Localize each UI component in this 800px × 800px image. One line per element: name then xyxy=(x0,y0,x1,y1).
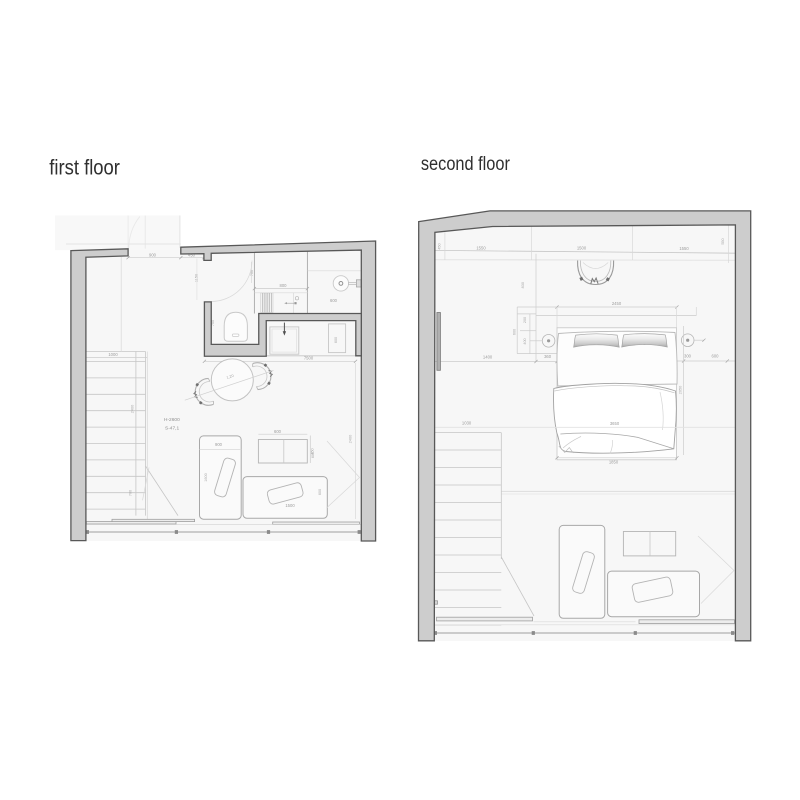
svg-text:700: 700 xyxy=(129,490,133,496)
svg-text:2400: 2400 xyxy=(349,435,353,443)
svg-text:600: 600 xyxy=(712,354,720,359)
svg-text:1500: 1500 xyxy=(577,245,587,250)
svg-text:1550: 1550 xyxy=(476,245,486,250)
svg-text:1150: 1150 xyxy=(195,274,199,282)
svg-text:450: 450 xyxy=(311,448,315,454)
svg-text:600: 600 xyxy=(330,298,338,303)
svg-text:300: 300 xyxy=(684,354,692,359)
svg-text:3650: 3650 xyxy=(610,421,620,426)
svg-text:900: 900 xyxy=(215,442,223,447)
svg-text:1850: 1850 xyxy=(609,460,619,465)
svg-text:2400: 2400 xyxy=(131,405,135,413)
svg-text:H-2600: H-2600 xyxy=(164,417,180,423)
svg-text:600: 600 xyxy=(334,337,338,343)
svg-text:900: 900 xyxy=(149,253,157,258)
svg-text:7500: 7500 xyxy=(304,356,314,361)
svg-text:2450: 2450 xyxy=(612,301,622,306)
svg-text:1500: 1500 xyxy=(285,503,295,508)
svg-text:2050: 2050 xyxy=(679,386,683,394)
svg-text:1600: 1600 xyxy=(204,473,208,481)
svg-text:1400: 1400 xyxy=(483,355,493,360)
svg-text:360: 360 xyxy=(544,354,552,359)
svg-text:1550: 1550 xyxy=(679,246,689,251)
svg-text:450: 450 xyxy=(438,243,442,249)
svg-text:second floor: second floor xyxy=(421,154,511,175)
svg-text:600: 600 xyxy=(513,329,517,335)
svg-text:400: 400 xyxy=(523,338,527,344)
svg-text:800: 800 xyxy=(280,283,288,288)
svg-text:1000: 1000 xyxy=(108,352,118,357)
svg-text:830: 830 xyxy=(521,282,525,288)
svg-text:600: 600 xyxy=(274,429,282,434)
svg-text:550: 550 xyxy=(721,238,725,244)
svg-text:600: 600 xyxy=(318,489,322,495)
svg-text:S-47,1: S-47,1 xyxy=(165,426,179,432)
svg-text:first floor: first floor xyxy=(49,157,120,180)
svg-text:200: 200 xyxy=(523,317,527,323)
svg-text:1030: 1030 xyxy=(462,421,472,426)
